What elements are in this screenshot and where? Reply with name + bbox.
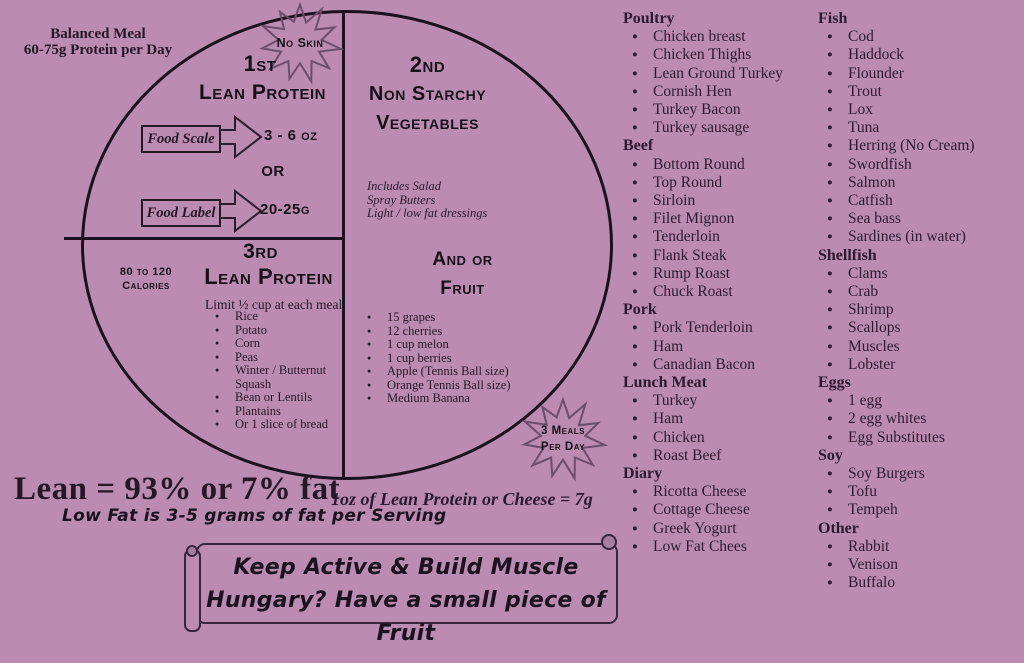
food-label-value: 20-25g [260,201,310,218]
bullet-icon: ● [632,410,653,428]
bullet-icon: ● [632,265,653,283]
bullet-icon: ● [827,556,848,574]
list-item: ●Turkey sausage [623,119,821,137]
note-line: Light / low fat dressings [367,207,487,221]
list-item-label: Shrimp [848,301,1016,319]
list-item-label: Scallops [848,319,1016,337]
list-item-label: 1 egg [848,392,1016,410]
list-item-label: Swordfish [848,156,1016,174]
list-item: ●Medium Banana [360,392,525,406]
bullet-icon: ● [215,418,235,432]
bullet-icon: ● [367,338,387,352]
list-item: ●Or 1 slice of bread [208,418,346,432]
list-item-label: Low Fat Chees [653,538,821,556]
plate-horizontal-divider [64,237,345,240]
list-item-label: Potato [235,324,346,338]
list-item: ●Buffalo [818,574,1016,592]
section2-title-line1: Non Starchy [340,80,515,109]
section1-rank: 1st [225,51,295,77]
bullet-icon: ● [632,283,653,301]
starch-list: ●Rice●Potato●Corn●Peas●Winter / Butternu… [208,310,346,432]
bullet-icon: ● [827,28,848,46]
category-header: Other [818,520,1016,538]
list-item: ●Catfish [818,192,1016,210]
bullet-icon: ● [367,392,387,406]
bullet-icon: ● [215,324,235,338]
list-item-label: Winter / Butternut Squash [235,364,346,391]
section2-subtitle-line2: Fruit [400,274,525,303]
bullet-icon: ● [827,156,848,174]
list-item-label: Chicken [653,429,821,447]
section2-subtitle: And or Fruit [400,245,525,303]
list-item-label: Bottom Round [653,156,821,174]
bullet-icon: ● [632,447,653,465]
list-item-label: Orange Tennis Ball size) [387,379,525,393]
meals-badge-line2: Per Day [541,439,585,455]
list-item: ●Potato [208,324,346,338]
list-item: ●Peas [208,351,346,365]
bullet-icon: ● [215,310,235,324]
list-item-label: Flank Steak [653,247,821,265]
category-header: Pork [623,301,821,319]
bullet-icon: ● [827,538,848,556]
bullet-icon: ● [827,338,848,356]
list-item-label: Ham [653,338,821,356]
food-scale-label: Food Scale [147,131,214,148]
section2-heading: 2nd Non Starchy Vegetables [340,50,515,138]
list-item: ●Tenderloin [623,228,821,246]
list-item: ●1 cup melon [360,338,525,352]
bullet-icon: ● [827,83,848,101]
bullet-icon: ● [827,101,848,119]
section2-notes: Includes SaladSpray ButtersLight / low f… [367,180,487,221]
list-item: ●Sardines (in water) [818,228,1016,246]
list-item-label: Rice [235,310,346,324]
bullet-icon: ● [827,501,848,519]
section3-calories-line2: Calories [110,279,182,293]
list-item: ●Crab [818,283,1016,301]
list-item-label: Clams [848,265,1016,283]
list-item: ●Lean Ground Turkey [623,65,821,83]
list-item: ●Tofu [818,483,1016,501]
list-item-label: Sardines (in water) [848,228,1016,246]
category-header: Beef [623,137,821,155]
list-item-label: Apple (Tennis Ball size) [387,365,525,379]
bullet-icon: ● [632,46,653,64]
bullet-icon: ● [827,137,848,155]
list-item: ●Flank Steak [623,247,821,265]
list-item-label: Corn [235,337,346,351]
list-item: ●Pork Tenderloin [623,319,821,337]
category-header: Poultry [623,10,821,28]
page-title: Balanced Meal 60-75g Protein per Day [12,26,184,58]
list-item: ●Tuna [818,119,1016,137]
list-item-label: Turkey sausage [653,119,821,137]
list-item-label: Lean Ground Turkey [653,65,821,83]
note-line: Spray Butters [367,194,487,208]
banner-scroll-roll [184,549,201,632]
category-header: Soy [818,447,1016,465]
list-item-label: 1 cup melon [387,338,525,352]
list-item: ●Turkey [623,392,821,410]
list-item: ●Cottage Cheese [623,501,821,519]
list-item-label: Soy Burgers [848,465,1016,483]
bullet-icon: ● [215,391,235,405]
list-item-label: Tenderloin [653,228,821,246]
list-item-label: Muscles [848,338,1016,356]
list-item-label: Herring (No Cream) [848,137,1016,155]
scroll-curl-icon [186,545,198,557]
list-item: ●1 egg [818,392,1016,410]
list-item: ●Chicken breast [623,28,821,46]
list-item-label: Ham [653,410,821,428]
section2-title-line2: Vegetables [340,109,515,138]
list-item: ●Scallops [818,319,1016,337]
banner-line2: Hungary? Have a small piece of Fruit [206,584,606,650]
list-item: ●Chuck Roast [623,283,821,301]
bullet-icon: ● [827,265,848,283]
bullet-icon: ● [827,192,848,210]
list-item-label: Cornish Hen [653,83,821,101]
bullet-icon: ● [632,429,653,447]
section3-calories: 80 to 120 Calories [110,265,182,293]
list-item-label: Or 1 slice of bread [235,418,346,432]
lean-footnote: Lean = 93% or 7% fat [14,471,340,508]
list-item: ●Plantains [208,405,346,419]
list-item: ●Corn [208,337,346,351]
list-item: ●Salmon [818,174,1016,192]
bullet-icon: ● [632,338,653,356]
list-item: ●Rabbit [818,538,1016,556]
list-item-label: Cottage Cheese [653,501,821,519]
bullet-icon: ● [367,379,387,393]
list-item-label: Pork Tenderloin [653,319,821,337]
food-list-column-1: Poultry●Chicken breast●Chicken Thighs●Le… [623,10,821,556]
list-item-label: Egg Substitutes [848,429,1016,447]
bullet-icon: ● [632,28,653,46]
list-item-label: Peas [235,351,346,365]
list-item-label: Canadian Bacon [653,356,821,374]
bullet-icon: ● [632,210,653,228]
list-item-label: Lox [848,101,1016,119]
bullet-icon: ● [367,325,387,339]
list-item-label: Haddock [848,46,1016,64]
bullet-icon: ● [632,356,653,374]
list-item: ●Orange Tennis Ball size) [360,379,525,393]
list-item: ●Bottom Round [623,156,821,174]
list-item-label: Venison [848,556,1016,574]
list-item: ●Swordfish [818,156,1016,174]
list-item: ●Chicken Thighs [623,46,821,64]
list-item: ●Apple (Tennis Ball size) [360,365,525,379]
bullet-icon: ● [632,520,653,538]
list-item-label: Flounder [848,65,1016,83]
page-title-line2: 60-75g Protein per Day [12,42,184,58]
category-header: Diary [623,465,821,483]
banner-line1: Keep Active & Build Muscle [206,551,606,584]
list-item: ●Clams [818,265,1016,283]
list-item-label: 15 grapes [387,311,525,325]
list-item-label: Tuna [848,119,1016,137]
bullet-icon: ● [827,46,848,64]
list-item: ●Top Round [623,174,821,192]
list-item: ●Soy Burgers [818,465,1016,483]
bullet-icon: ● [827,356,848,374]
bullet-icon: ● [367,311,387,325]
bullet-icon: ● [827,65,848,83]
list-item-label: Bean or Lentils [235,391,346,405]
list-item-label: Chicken breast [653,28,821,46]
list-item-label: Roast Beef [653,447,821,465]
bullet-icon: ● [367,352,387,366]
bullet-icon: ● [632,392,653,410]
list-item: ●Venison [818,556,1016,574]
bullet-icon: ● [827,392,848,410]
list-item: ●Rice [208,310,346,324]
bullet-icon: ● [827,228,848,246]
section3-rank: 3rd [228,240,293,264]
bullet-icon: ● [827,210,848,228]
bullet-icon: ● [632,319,653,337]
category-header: Shellfish [818,247,1016,265]
list-item-label: Sirloin [653,192,821,210]
bullet-icon: ● [632,483,653,501]
section2-rank: 2nd [340,50,515,80]
list-item: ●Flounder [818,65,1016,83]
bullet-icon: ● [215,364,235,378]
list-item: ●Sirloin [623,192,821,210]
bullet-icon: ● [827,483,848,501]
bullet-icon: ● [632,119,653,137]
list-item-label: Chuck Roast [653,283,821,301]
list-item: ●2 egg whites [818,410,1016,428]
list-item-label: Filet Mignon [653,210,821,228]
bullet-icon: ● [827,319,848,337]
bullet-icon: ● [632,65,653,83]
bullet-icon: ● [632,101,653,119]
bullet-icon: ● [827,429,848,447]
list-item: ●Herring (No Cream) [818,137,1016,155]
lowfat-footnote: Low Fat is 3-5 grams of fat per Serving [62,506,447,526]
section2-subtitle-line1: And or [400,245,525,274]
list-item: ●Lobster [818,356,1016,374]
list-item: ●Tempeh [818,501,1016,519]
list-item: ●Cornish Hen [623,83,821,101]
list-item-label: Tofu [848,483,1016,501]
list-item: ●Roast Beef [623,447,821,465]
list-item-label: Medium Banana [387,392,525,406]
bullet-icon: ● [827,465,848,483]
list-item-label: Top Round [653,174,821,192]
scroll-curl-icon [601,534,617,550]
list-item: ●1 cup berries [360,352,525,366]
bullet-icon: ● [827,119,848,137]
list-item: ●Trout [818,83,1016,101]
list-item: ●15 grapes [360,311,525,325]
list-item-label: Greek Yogurt [653,520,821,538]
food-list-column-2: Fish●Cod●Haddock●Flounder●Trout●Lox●Tuna… [818,10,1016,593]
list-item: ●Lox [818,101,1016,119]
list-item: ●Winter / Butternut Squash [208,364,346,391]
list-item: ●Sea bass [818,210,1016,228]
list-item-label: Rump Roast [653,265,821,283]
section3-calories-line1: 80 to 120 [110,265,182,279]
bullet-icon: ● [215,351,235,365]
bullet-icon: ● [215,337,235,351]
list-item-label: Chicken Thighs [653,46,821,64]
list-item: ●Shrimp [818,301,1016,319]
list-item: ●Ham [623,410,821,428]
or-label: OR [255,163,291,180]
bullet-icon: ● [827,283,848,301]
food-label-label: Food Label [147,205,216,222]
list-item: ●Filet Mignon [623,210,821,228]
page-title-line1: Balanced Meal [12,26,184,42]
list-item-label: Turkey [653,392,821,410]
list-item-label: Cod [848,28,1016,46]
list-item: ●Ham [623,338,821,356]
bullet-icon: ● [827,301,848,319]
bullet-icon: ● [215,405,235,419]
list-item: ●Egg Substitutes [818,429,1016,447]
list-item-label: Trout [848,83,1016,101]
list-item-label: 2 egg whites [848,410,1016,428]
food-scale-box: Food Scale [141,125,221,153]
list-item: ●12 cherries [360,325,525,339]
list-item-label: Buffalo [848,574,1016,592]
bullet-icon: ● [632,174,653,192]
fruit-list: ●15 grapes●12 cherries●1 cup melon●1 cup… [360,311,525,406]
bullet-icon: ● [367,365,387,379]
list-item: ●Haddock [818,46,1016,64]
bullet-icon: ● [632,192,653,210]
category-header: Fish [818,10,1016,28]
list-item-label: 12 cherries [387,325,525,339]
list-item: ●Chicken [623,429,821,447]
bullet-icon: ● [632,247,653,265]
list-item: ●Ricotta Cheese [623,483,821,501]
list-item: ●Low Fat Chees [623,538,821,556]
list-item-label: Lobster [848,356,1016,374]
bullet-icon: ● [632,83,653,101]
list-item-label: Sea bass [848,210,1016,228]
list-item-label: Ricotta Cheese [653,483,821,501]
category-header: Eggs [818,374,1016,392]
food-scale-value: 3 - 6 oz [264,127,317,144]
meals-badge-line1: 3 Meals [541,423,585,439]
bullet-icon: ● [632,156,653,174]
banner-text: Keep Active & Build Muscle Hungary? Have… [206,551,606,650]
list-item: ●Cod [818,28,1016,46]
bullet-icon: ● [827,574,848,592]
list-item-label: Plantains [235,405,346,419]
list-item: ●Canadian Bacon [623,356,821,374]
list-item-label: 1 cup berries [387,352,525,366]
bullet-icon: ● [632,501,653,519]
note-line: Includes Salad [367,180,487,194]
list-item-label: Catfish [848,192,1016,210]
list-item-label: Crab [848,283,1016,301]
list-item: ●Turkey Bacon [623,101,821,119]
list-item-label: Turkey Bacon [653,101,821,119]
list-item-label: Tempeh [848,501,1016,519]
section3-title: Lean Protein [176,264,361,290]
category-header: Lunch Meat [623,374,821,392]
bullet-icon: ● [632,228,653,246]
bullet-icon: ● [827,410,848,428]
bullet-icon: ● [632,538,653,556]
list-item: ●Rump Roast [623,265,821,283]
section1-title: Lean Protein [170,81,355,105]
bullet-icon: ● [827,174,848,192]
list-item: ●Bean or Lentils [208,391,346,405]
list-item: ●Muscles [818,338,1016,356]
list-item: ●Greek Yogurt [623,520,821,538]
list-item-label: Salmon [848,174,1016,192]
food-label-box: Food Label [141,199,221,227]
balanced-meal-infographic: Balanced Meal 60-75g Protein per Day No … [0,0,1024,663]
list-item-label: Rabbit [848,538,1016,556]
